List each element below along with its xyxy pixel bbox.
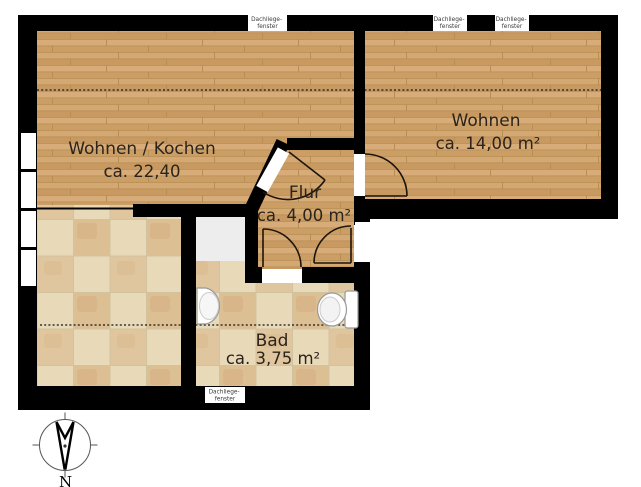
skylight-label-3: Dachliege- fenster bbox=[495, 14, 529, 31]
wall-room-divider-lower bbox=[354, 196, 365, 219]
living-kitchen-wood-floor bbox=[37, 31, 354, 205]
room-label-flur: Flur bbox=[289, 183, 321, 203]
compass-north-label: N bbox=[59, 473, 72, 487]
wall-east bbox=[601, 15, 618, 219]
window-west-4 bbox=[21, 250, 36, 286]
floor-plan: Wohnen / Kochen ca. 22,40 Wohnen ca. 14,… bbox=[0, 0, 641, 487]
window-west-3 bbox=[21, 211, 36, 247]
window-west-1 bbox=[21, 133, 36, 169]
toilet bbox=[318, 291, 359, 328]
wall-hallway-south-left bbox=[245, 267, 262, 283]
room-area-bad: ca. 3,75 m² bbox=[226, 349, 320, 368]
kitchen-tile-floor bbox=[37, 205, 181, 386]
wall-room-divider-upper bbox=[354, 15, 365, 154]
room-area-wohnen-kochen: ca. 22,40 bbox=[104, 162, 181, 181]
skylight-label-4: Dachliege- fenster bbox=[205, 387, 245, 403]
door-opening-entry bbox=[355, 222, 370, 262]
wall-hallway-north bbox=[287, 138, 355, 150]
room-label-wohnen-kochen: Wohnen / Kochen bbox=[68, 139, 216, 159]
wall-hallway-south-right bbox=[302, 267, 355, 283]
skylight-label-1: Dachliege- fenster bbox=[248, 14, 287, 31]
wall-bottom bbox=[18, 386, 370, 410]
window-west-2 bbox=[21, 172, 36, 208]
room-label-wohnen: Wohnen bbox=[452, 111, 521, 131]
door-opening-bath bbox=[262, 269, 302, 283]
room-label-bad: Bad bbox=[256, 331, 289, 351]
wall-bath-west bbox=[181, 204, 196, 386]
skylight-label-2: Dachliege- fenster bbox=[433, 14, 467, 31]
wall-living-room-south bbox=[354, 199, 618, 219]
compass: N bbox=[33, 413, 98, 487]
room-area-flur: ca. 4,00 m² bbox=[257, 206, 351, 225]
compass-center-dot bbox=[63, 444, 66, 447]
room-area-wohnen: ca. 14,00 m² bbox=[436, 134, 541, 153]
door-opening-living-room bbox=[354, 154, 365, 196]
